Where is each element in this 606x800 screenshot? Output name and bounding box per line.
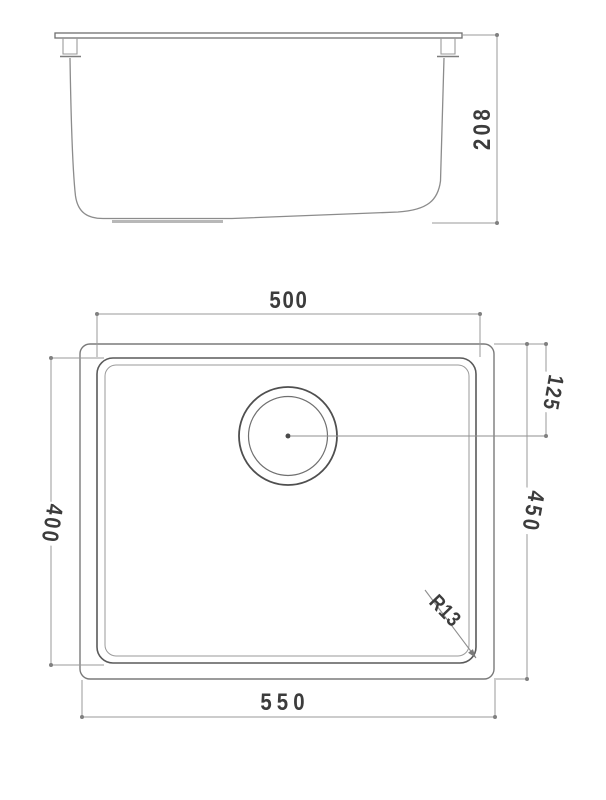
dim-label-bowl-depth-400: 400 xyxy=(36,500,68,547)
sink-line-drawing xyxy=(0,0,606,800)
bowl-rim-outer xyxy=(97,358,476,663)
dim-label-height-208: 208 xyxy=(471,106,495,150)
bowl-profile xyxy=(70,58,444,219)
outer-edge xyxy=(80,344,494,679)
right-clip xyxy=(441,38,455,54)
bowl-rim-inner xyxy=(105,365,469,656)
plan-view xyxy=(49,312,548,719)
left-clip xyxy=(63,38,77,54)
dim-label-overall-width-550: 550 xyxy=(260,691,309,715)
dim-label-bowl-width-500: 500 xyxy=(269,289,308,313)
dim-lines-500 xyxy=(97,314,480,357)
technical-drawing-sheet: 208 500 125 400 450 R13 550 xyxy=(0,0,606,800)
front-view xyxy=(55,33,499,225)
rim-flange xyxy=(55,33,462,38)
